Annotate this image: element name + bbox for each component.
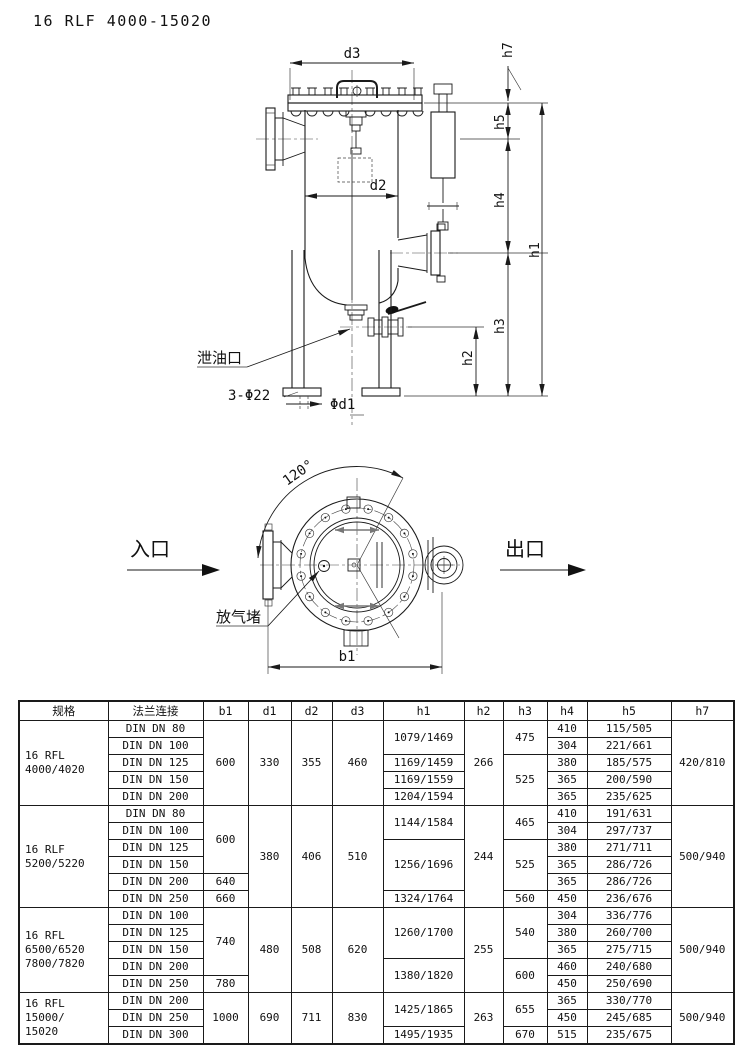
table-cell: 1425/1865 (383, 993, 464, 1027)
table-cell: 500/940 (671, 806, 734, 908)
table-cell: 410 (547, 806, 587, 823)
table-cell: 286/726 (587, 857, 671, 874)
table-cell: 336/776 (587, 908, 671, 925)
table-cell: 500/940 (671, 993, 734, 1045)
technical-drawing: d3 (0, 0, 750, 695)
dim-label-h7: h7 (501, 42, 516, 58)
table-cell: 255 (464, 908, 503, 993)
inlet-arrow (202, 564, 220, 576)
table-cell: 245/685 (587, 1010, 671, 1027)
column-header: h7 (671, 701, 734, 721)
table-cell: 380 (248, 806, 291, 908)
dim-label-d3: d3 (344, 46, 361, 62)
table-cell: 260/700 (587, 925, 671, 942)
table-cell: 235/625 (587, 789, 671, 806)
table-row: 16 RFL 4000/4020DIN DN 80600330355460107… (19, 721, 734, 738)
table-cell: DIN DN 250 (108, 1010, 203, 1027)
table-cell: 525 (503, 840, 547, 891)
column-header: 规格 (19, 701, 108, 721)
drawing-sheet: 16 RLF 4000-15020 d3 (0, 0, 750, 1053)
table-cell: DIN DN 200 (108, 789, 203, 806)
table-cell: 365 (547, 789, 587, 806)
table-cell: 263 (464, 993, 503, 1045)
table-cell: 560 (503, 891, 547, 908)
table-cell: 460 (547, 959, 587, 976)
table-cell: 330 (248, 721, 291, 806)
table-cell: 271/711 (587, 840, 671, 857)
table-cell: 250/690 (587, 976, 671, 993)
column-header: h3 (503, 701, 547, 721)
column-header: d2 (291, 701, 332, 721)
table-cell: 655 (503, 993, 547, 1027)
table-cell: 1260/1700 (383, 908, 464, 959)
column-header: d3 (332, 701, 383, 721)
spec-cell: 16 RLF 5200/5220 (19, 806, 108, 908)
table-cell: 1495/1935 (383, 1027, 464, 1045)
table-cell: DIN DN 200 (108, 874, 203, 891)
table-cell: 1144/1584 (383, 806, 464, 840)
table-cell: 540 (503, 908, 547, 959)
table-cell: 510 (332, 806, 383, 908)
table-cell: 660 (203, 891, 248, 908)
table-cell: 465 (503, 806, 547, 840)
table-cell: DIN DN 125 (108, 925, 203, 942)
table-cell: DIN DN 200 (108, 993, 203, 1010)
dim-label-b1: b1 (339, 649, 356, 665)
table-cell: 475 (503, 721, 547, 755)
table-cell: DIN DN 80 (108, 806, 203, 823)
table-cell: 365 (547, 942, 587, 959)
table-cell: 275/715 (587, 942, 671, 959)
table-cell: 620 (332, 908, 383, 993)
table-cell: 115/505 (587, 721, 671, 738)
column-header: h4 (547, 701, 587, 721)
spec-cell: 16 RFL 15000/ 15020 (19, 993, 108, 1045)
table-cell: 780 (203, 976, 248, 993)
foot-holes-label: 3-Φ22 (228, 388, 270, 404)
column-header: d1 (248, 701, 291, 721)
table-cell: 740 (203, 908, 248, 976)
table-cell: DIN DN 200 (108, 959, 203, 976)
table-cell: DIN DN 100 (108, 823, 203, 840)
table-cell: 330/770 (587, 993, 671, 1010)
table-cell: 450 (547, 1010, 587, 1027)
table-cell: 711 (291, 993, 332, 1045)
table-cell: 355 (291, 721, 332, 806)
valve-handle-grip (385, 305, 400, 316)
table-cell: 830 (332, 993, 383, 1045)
table-cell: 420/810 (671, 721, 734, 806)
column-header: 法兰连接 (108, 701, 203, 721)
column-header: h1 (383, 701, 464, 721)
spec-cell: 16 RFL 6500/6520 7800/7820 (19, 908, 108, 993)
table-cell: 690 (248, 993, 291, 1045)
table-cell: 221/661 (587, 738, 671, 755)
column-header: h2 (464, 701, 503, 721)
column-header: h5 (587, 701, 671, 721)
table-cell: 380 (547, 925, 587, 942)
table-cell: DIN DN 250 (108, 976, 203, 993)
table-cell: DIN DN 125 (108, 840, 203, 857)
table-cell: 406 (291, 806, 332, 908)
top-view: 120° (127, 457, 586, 674)
table-cell: 304 (547, 738, 587, 755)
bolt-circle-label: Φd1 (330, 397, 355, 413)
table-cell: 1204/1594 (383, 789, 464, 806)
table-cell: 380 (547, 840, 587, 857)
table-cell: 525 (503, 755, 547, 806)
spec-table: 规格法兰连接b1d1d2d3h1h2h3h4h5h7 16 RFL 4000/4… (18, 700, 735, 1045)
table-cell: 1079/1469 (383, 721, 464, 755)
table-cell: 200/590 (587, 772, 671, 789)
table-cell: DIN DN 250 (108, 891, 203, 908)
table-cell: 460 (332, 721, 383, 806)
spec-table-wrap: 规格法兰连接b1d1d2d3h1h2h3h4h5h7 16 RFL 4000/4… (18, 700, 735, 1045)
table-cell: 1000 (203, 993, 248, 1045)
inlet-label: 入口 (130, 537, 170, 561)
table-cell: 244 (464, 806, 503, 908)
spec-cell: 16 RFL 4000/4020 (19, 721, 108, 806)
dim-label-h1: h1 (528, 242, 543, 258)
table-row: 16 RLF 5200/5220DIN DN 80600380406510114… (19, 806, 734, 823)
table-cell: 1256/1696 (383, 840, 464, 891)
table-header-row: 规格法兰连接b1d1d2d3h1h2h3h4h5h7 (19, 701, 734, 721)
table-cell: 480 (248, 908, 291, 993)
angle-label: 120° (280, 457, 317, 489)
dim-label-h5: h5 (493, 114, 508, 130)
table-cell: 600 (503, 959, 547, 993)
table-cell: 450 (547, 976, 587, 993)
table-cell: 515 (547, 1027, 587, 1045)
table-cell: 600 (203, 721, 248, 806)
table-cell: 1380/1820 (383, 959, 464, 993)
table-cell: 191/631 (587, 806, 671, 823)
table-cell: 450 (547, 891, 587, 908)
table-cell: 304 (547, 823, 587, 840)
outlet-label: 出口 (505, 537, 545, 561)
table-cell: 508 (291, 908, 332, 993)
table-cell: DIN DN 100 (108, 738, 203, 755)
table-cell: 600 (203, 806, 248, 874)
table-row: 16 RFL 15000/ 15020DIN DN 20010006907118… (19, 993, 734, 1010)
table-cell: 365 (547, 857, 587, 874)
table-cell: 304 (547, 908, 587, 925)
table-cell: 640 (203, 874, 248, 891)
table-cell: 410 (547, 721, 587, 738)
table-cell: 1169/1459 (383, 755, 464, 772)
table-cell: 380 (547, 755, 587, 772)
table-cell: DIN DN 125 (108, 755, 203, 772)
table-cell: 1324/1764 (383, 891, 464, 908)
table-cell: DIN DN 150 (108, 772, 203, 789)
table-row: 16 RFL 6500/6520 7800/7820DIN DN 1007404… (19, 908, 734, 925)
table-cell: DIN DN 300 (108, 1027, 203, 1045)
table-cell: 286/726 (587, 874, 671, 891)
table-cell: DIN DN 150 (108, 942, 203, 959)
table-cell: 365 (547, 874, 587, 891)
table-cell: 297/737 (587, 823, 671, 840)
table-cell: 670 (503, 1027, 547, 1045)
table-cell: DIN DN 100 (108, 908, 203, 925)
table-cell: 236/676 (587, 891, 671, 908)
table-cell: 1169/1559 (383, 772, 464, 789)
dim-label-h3: h3 (493, 318, 508, 334)
vent-plug-label: 放气堵 (216, 608, 261, 626)
column-header: b1 (203, 701, 248, 721)
outlet-arrow (568, 564, 586, 576)
table-cell: 365 (547, 993, 587, 1010)
table-cell: DIN DN 150 (108, 857, 203, 874)
table-cell: 185/575 (587, 755, 671, 772)
dim-label-h2: h2 (461, 350, 476, 366)
dim-label-h4: h4 (493, 192, 508, 208)
table-cell: 240/680 (587, 959, 671, 976)
table-cell: 365 (547, 772, 587, 789)
table-cell: DIN DN 80 (108, 721, 203, 738)
table-cell: 266 (464, 721, 503, 806)
table-cell: 235/675 (587, 1027, 671, 1045)
dim-label-d2: d2 (370, 178, 387, 194)
drain-port-label: 泄油口 (197, 349, 242, 367)
front-view: d3 (197, 42, 548, 425)
table-cell: 500/940 (671, 908, 734, 993)
